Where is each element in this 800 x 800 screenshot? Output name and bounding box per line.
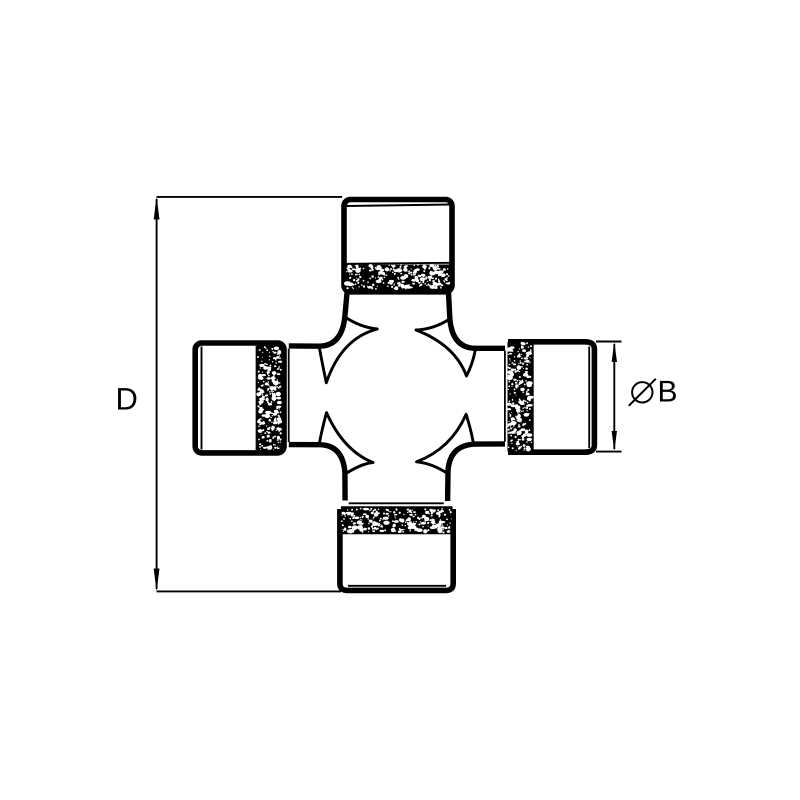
svg-text:B: B (658, 376, 678, 409)
svg-text:D: D (116, 382, 138, 417)
